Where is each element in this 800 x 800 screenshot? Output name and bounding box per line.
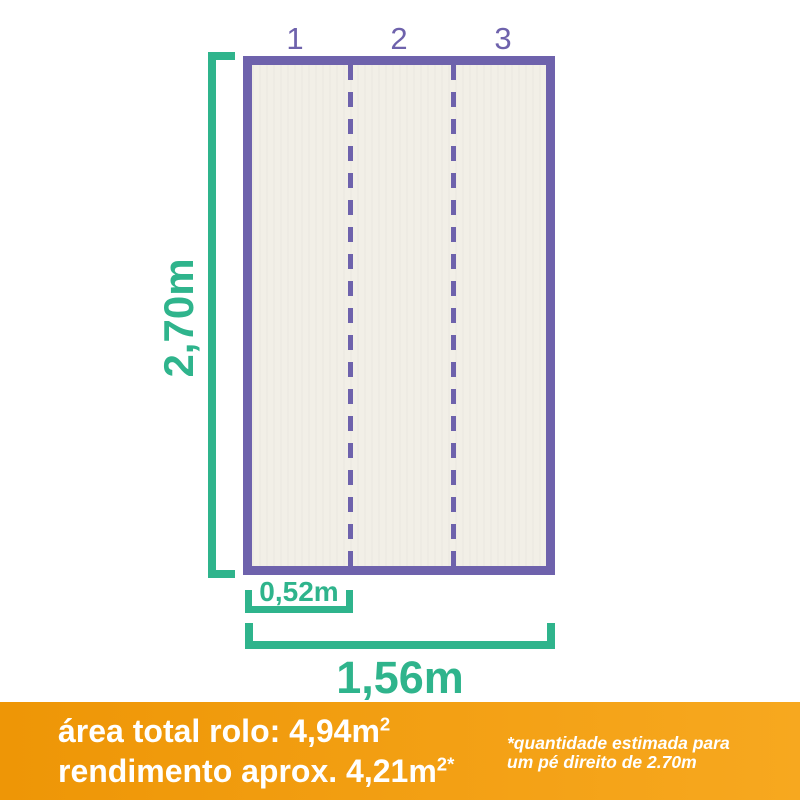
strip-width-label: 0,52m <box>245 577 353 606</box>
footnote: *quantidade estimada para um pé direito … <box>507 734 730 772</box>
strip-divider-dashed-line-2 <box>451 65 456 566</box>
total-width-bracket <box>245 623 555 649</box>
total-width-label: 1,56m <box>245 652 555 704</box>
roll-area-superscript: 2 <box>380 713 390 734</box>
yield-text: rendimento aprox. 4,21m <box>58 753 437 789</box>
roll-stats: área total rolo: 4,94m2 rendimento aprox… <box>58 711 454 791</box>
strip-number-2: 2 <box>347 22 451 56</box>
yield-superscript: 2* <box>437 753 455 774</box>
footer-banner: área total rolo: 4,94m2 rendimento aprox… <box>0 702 800 800</box>
roll-rectangle <box>243 56 555 575</box>
roll-area-line: área total rolo: 4,94m2 <box>58 711 454 751</box>
roll-area-text: área total rolo: 4,94m <box>58 713 380 749</box>
footnote-line-2: um pé direito de 2.70m <box>507 753 730 772</box>
strip-divider-dashed-line-1 <box>348 65 353 566</box>
strip-number-3: 3 <box>451 22 555 56</box>
height-dimension-label: 2,70m <box>155 258 203 377</box>
wallpaper-roll-infographic: 1 2 3 2,70m 0,52m 1,56m área total rolo:… <box>0 0 800 800</box>
strip-number-1: 1 <box>243 22 347 56</box>
footnote-line-1: *quantidade estimada para <box>507 734 730 753</box>
height-dimension-bracket <box>208 52 235 578</box>
yield-line: rendimento aprox. 4,21m2* <box>58 751 454 791</box>
strip-numbers-row: 1 2 3 <box>243 22 555 56</box>
